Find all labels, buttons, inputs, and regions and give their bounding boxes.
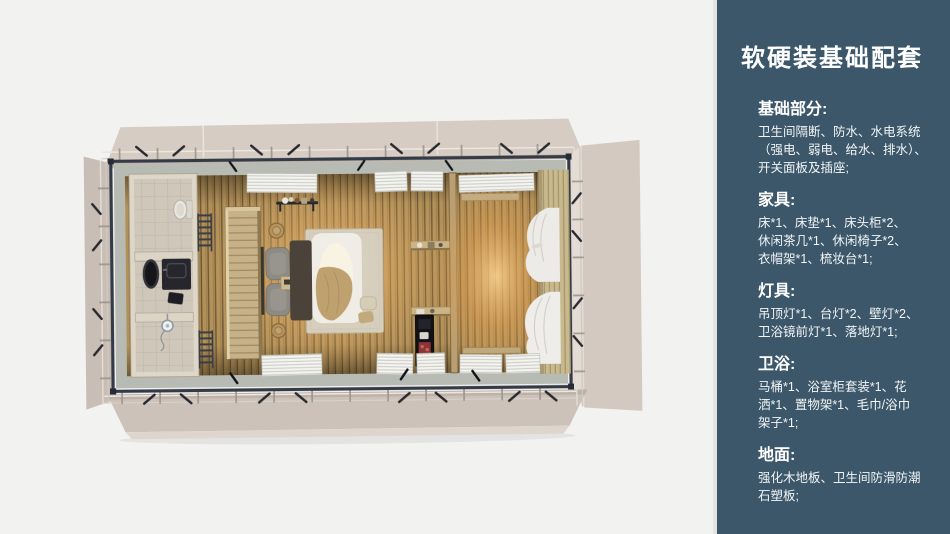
section-furniture: 家具: 床*1、床垫*1、床头柜*2、 休闲茶几*1、休闲椅子*2、 衣帽架*1…: [758, 191, 936, 268]
section-bathroom: 卫浴: 马桶*1、浴室柜套装*1、花 洒*1、置物架*1、毛巾/浴巾 架子*1;: [758, 355, 936, 432]
section-heading: 地面:: [758, 446, 936, 466]
section-flooring: 地面: 强化木地板、卫生间防滑防潮 石塑板;: [758, 446, 936, 505]
sunroom-shelf-bottom: [463, 347, 521, 354]
section-body: 卫生间隔断、防水、水电系统 （强电、弱电、给水、排水）、 开关面板及插座;: [758, 123, 936, 177]
floor-cushion: [358, 311, 374, 324]
floor-plan-svg: [0, 0, 717, 534]
section-lighting: 灯具: 吊顶灯*1、台灯*2、壁灯*2、 卫浴镜前灯*1、落地灯*1;: [758, 282, 936, 341]
section-heading: 基础部分:: [758, 100, 936, 120]
package-info-panel: 软硬装基础配套 基础部分: 卫生间隔断、防水、水电系统 （强电、弱电、给水、排水…: [717, 0, 950, 534]
dark-duvet-fold: [290, 240, 313, 320]
section-heading: 卫浴:: [758, 355, 936, 375]
section-heading: 家具:: [758, 191, 936, 211]
slide: 软硬装基础配套 基础部分: 卫生间隔断、防水、水电系统 （强电、弱电、给水、排水…: [0, 0, 950, 534]
section-body: 强化木地板、卫生间防滑防潮 石塑板;: [758, 469, 936, 505]
sunroom-shelf-top: [461, 193, 519, 201]
section-body: 吊顶灯*1、台灯*2、壁灯*2、 卫浴镜前灯*1、落地灯*1;: [758, 305, 936, 341]
panel-title: 软硬装基础配套: [741, 44, 936, 74]
floor-plan-render: [0, 0, 717, 534]
section-heading: 灯具:: [758, 282, 936, 302]
wardrobe: [225, 207, 262, 359]
pouf: [360, 297, 376, 310]
section-body: 马桶*1、浴室柜套装*1、花 洒*1、置物架*1、毛巾/浴巾 架子*1;: [758, 378, 936, 432]
bathroom: [129, 173, 199, 377]
section-body: 床*1、床垫*1、床头柜*2、 休闲茶几*1、休闲椅子*2、 衣帽架*1、梳妆台…: [758, 214, 936, 268]
section-basics: 基础部分: 卫生间隔断、防水、水电系统 （强电、弱电、给水、排水）、 开关面板及…: [758, 100, 936, 177]
toilet: [174, 200, 193, 219]
